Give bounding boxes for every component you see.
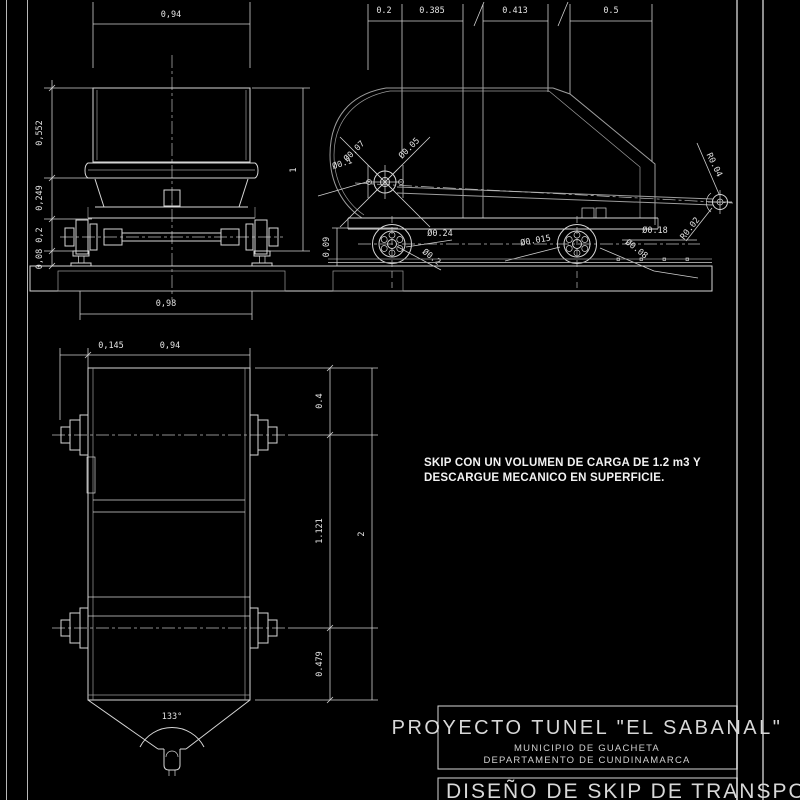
title-drawing: DISEÑO DE SKIP DE TRANSPORTE: [446, 779, 800, 800]
dim-plan-total: 2: [357, 531, 367, 536]
ground-section: [30, 266, 712, 291]
plan-view: 0,145 0,94 133°: [52, 341, 378, 776]
r-hook-inner: R0.02: [679, 216, 703, 242]
side-wheel-front: [373, 216, 412, 288]
dim-plan-offset: 0,145: [98, 341, 124, 351]
dim-tip-angle: 133°: [162, 712, 182, 722]
dim-rail-gauge: 0,98: [156, 299, 176, 309]
dim-rail-height: 0,09: [322, 237, 332, 257]
dim-front-total: 1: [289, 167, 299, 172]
side-view: 0.2 0.385 0.413 0.5 Ø0.07 Ø0.05 Ø0.1: [318, 2, 733, 288]
dia-pin-rear: Ø0.015: [519, 232, 551, 248]
front-view: 0,94: [35, 2, 310, 320]
dia-axle-front: Ø0.2: [420, 246, 443, 267]
title-municipality: MUNICIPIO DE GUACHETA: [514, 743, 660, 754]
note-text: SKIP CON UN VOLUMEN DE CARGA DE 1.2 m3 Y…: [424, 457, 701, 484]
dim-front-h3: 0,2: [35, 227, 45, 242]
dim-front-h1: 0,552: [35, 120, 45, 146]
title-block: PROYECTO TUNEL "EL SABANAL" MUNICIPIO DE…: [392, 706, 800, 800]
dim-plan-front: 0.4: [315, 393, 325, 408]
dim-side-top2: 0.385: [419, 6, 445, 16]
dim-plan-rear: 0.479: [315, 651, 325, 677]
side-wheel-rear: [558, 216, 597, 288]
dia-wheel-rear: Ø0.18: [642, 225, 668, 236]
dia-wheel-front: Ø0.24: [427, 228, 453, 239]
dim-side-top4: 0.5: [603, 6, 618, 16]
sheet-border-right: [737, 0, 763, 800]
title-department: DEPARTAMENTO DE CUNDINAMARCA: [483, 755, 690, 766]
dim-plan-middle: 1.121: [315, 518, 325, 544]
note-line-1: SKIP CON UN VOLUMEN DE CARGA DE 1.2 m3 Y: [424, 457, 701, 469]
dim-plan-width: 0,94: [160, 341, 180, 351]
dim-front-h2: 0,249: [35, 185, 45, 211]
title-project: PROYECTO TUNEL "EL SABANAL": [392, 717, 783, 739]
sheet-border-left: [7, 0, 28, 800]
dim-side-top1: 0.2: [376, 6, 391, 16]
cad-drawing-sheet: 0,94: [0, 0, 800, 800]
dim-side-top3: 0.413: [502, 6, 528, 16]
dia-axle-rear: Ø0.08: [623, 237, 650, 261]
note-line-2: DESCARGUE MECANICO EN SUPERFICIE.: [424, 472, 664, 484]
dim-front-width: 0,94: [161, 10, 181, 20]
